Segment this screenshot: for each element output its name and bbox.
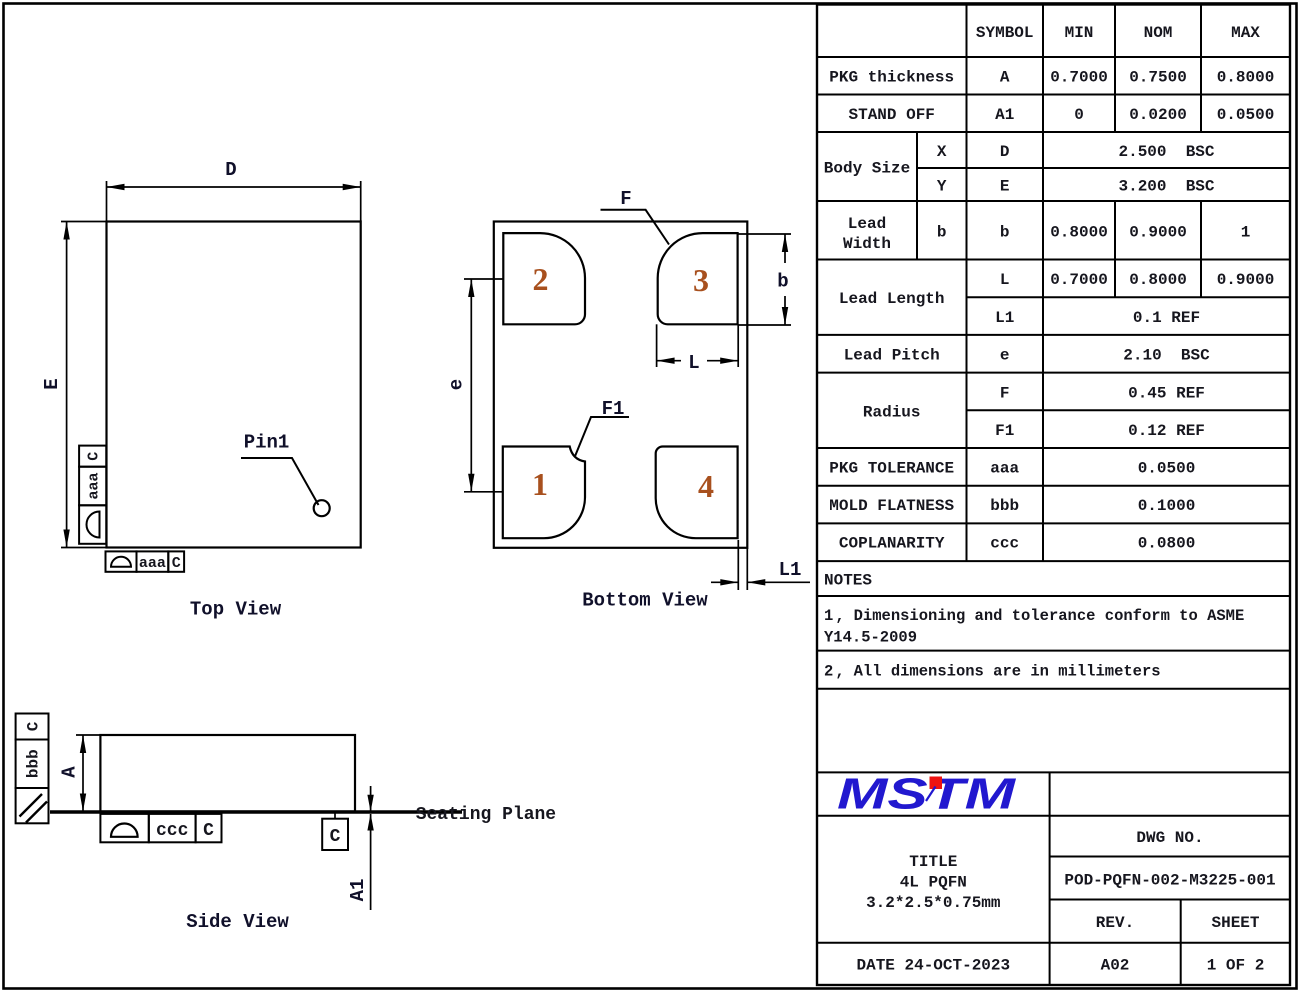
svg-text:MSTM: MSTM xyxy=(837,770,1017,819)
svg-text:0.1000: 0.1000 xyxy=(1138,497,1196,515)
svg-text:0.45 REF: 0.45 REF xyxy=(1128,385,1205,403)
svg-text:L1: L1 xyxy=(995,309,1014,327)
svg-text:C: C xyxy=(172,555,181,572)
svg-text:Width: Width xyxy=(843,235,891,253)
svg-text:Lead: Lead xyxy=(848,215,886,233)
svg-text:bbb: bbb xyxy=(990,497,1019,515)
svg-text:0.7000: 0.7000 xyxy=(1050,271,1108,289)
svg-text:A1: A1 xyxy=(347,879,369,902)
svg-text:Lead Pitch: Lead Pitch xyxy=(844,347,940,365)
svg-text:0.0500: 0.0500 xyxy=(1138,460,1196,478)
svg-text:Pin1: Pin1 xyxy=(244,432,290,454)
svg-text:F: F xyxy=(620,188,631,210)
svg-text:b: b xyxy=(937,224,947,242)
svg-text:STAND OFF: STAND OFF xyxy=(848,106,934,124)
svg-text:L: L xyxy=(1000,271,1010,289)
svg-text:F1: F1 xyxy=(602,398,625,420)
svg-text:1: 1 xyxy=(1241,224,1251,242)
svg-text:C: C xyxy=(330,827,341,847)
svg-text:C: C xyxy=(86,452,103,461)
svg-text:Side View: Side View xyxy=(186,911,289,933)
svg-text:POD-PQFN-002-M3225-001: POD-PQFN-002-M3225-001 xyxy=(1064,872,1275,890)
svg-text:0.0500: 0.0500 xyxy=(1217,106,1275,124)
svg-text:A: A xyxy=(1000,69,1010,87)
svg-text:0.9000: 0.9000 xyxy=(1217,271,1275,289)
svg-text:MOLD FLATNESS: MOLD FLATNESS xyxy=(829,497,954,515)
svg-text:Y14.5-2009: Y14.5-2009 xyxy=(824,629,917,647)
svg-text:ccc: ccc xyxy=(990,535,1019,553)
svg-text:Seating Plane: Seating Plane xyxy=(416,805,556,825)
svg-text:MAX: MAX xyxy=(1231,24,1260,42)
svg-text:DWG NO.: DWG NO. xyxy=(1136,829,1203,847)
svg-text:aaa: aaa xyxy=(139,555,166,572)
svg-text:L: L xyxy=(688,352,699,374)
svg-text:aaa: aaa xyxy=(990,460,1019,478)
svg-text:0.8000: 0.8000 xyxy=(1217,69,1275,87)
svg-text:0.7000: 0.7000 xyxy=(1050,69,1108,87)
svg-text:C: C xyxy=(203,821,214,841)
svg-text:F1: F1 xyxy=(995,422,1014,440)
svg-text:F: F xyxy=(1000,385,1010,403)
svg-text:NOM: NOM xyxy=(1144,24,1173,42)
svg-text:D: D xyxy=(1000,143,1010,161)
svg-text:NOTES: NOTES xyxy=(824,572,872,590)
svg-text:b: b xyxy=(777,271,788,293)
svg-text:PKG TOLERANCE: PKG TOLERANCE xyxy=(829,460,954,478)
svg-text:e: e xyxy=(1000,347,1010,365)
svg-text:D: D xyxy=(225,159,236,181)
svg-text:3.2*2.5*0.75mm: 3.2*2.5*0.75mm xyxy=(866,894,1001,912)
svg-text:Y: Y xyxy=(937,178,947,196)
svg-text:Radius: Radius xyxy=(863,404,921,422)
svg-text:0.8000: 0.8000 xyxy=(1129,271,1187,289)
svg-text:3: 3 xyxy=(693,262,709,298)
svg-text:SYMBOL: SYMBOL xyxy=(976,24,1034,42)
svg-text:bbb: bbb xyxy=(25,749,43,778)
svg-text:1: 1 xyxy=(532,466,548,502)
svg-text:0.9000: 0.9000 xyxy=(1129,224,1187,242)
svg-text:DATE 24-OCT-2023: DATE 24-OCT-2023 xyxy=(856,957,1010,975)
svg-text:0: 0 xyxy=(1074,106,1084,124)
svg-text:e: e xyxy=(446,379,468,390)
svg-text:A02: A02 xyxy=(1101,957,1130,975)
svg-text:1 OF 2: 1 OF 2 xyxy=(1207,957,1265,975)
svg-text:Bottom View: Bottom View xyxy=(582,590,708,612)
svg-text:TITLE: TITLE xyxy=(909,853,957,871)
svg-text:3.200 BSC: 3.200 BSC xyxy=(1118,178,1214,196)
svg-text:2: 2 xyxy=(533,261,549,297)
svg-text:4: 4 xyxy=(698,468,714,504)
svg-text:2.500 BSC: 2.500 BSC xyxy=(1118,143,1214,161)
svg-text:COPLANARITY: COPLANARITY xyxy=(839,535,945,553)
svg-text:A1: A1 xyxy=(995,106,1014,124)
svg-text:b: b xyxy=(1000,224,1010,242)
svg-text:0.7500: 0.7500 xyxy=(1129,69,1187,87)
svg-text:SHEET: SHEET xyxy=(1211,914,1259,932)
svg-text:Lead Length: Lead Length xyxy=(839,290,945,308)
svg-text:Top View: Top View xyxy=(190,599,282,621)
svg-text:Body Size: Body Size xyxy=(824,160,910,178)
svg-text:0.8000: 0.8000 xyxy=(1050,224,1108,242)
svg-text:E: E xyxy=(41,378,63,389)
svg-text:0.0800: 0.0800 xyxy=(1138,535,1196,553)
svg-text:MIN: MIN xyxy=(1065,24,1094,42)
svg-text:E: E xyxy=(1000,178,1010,196)
svg-text:REV.: REV. xyxy=(1096,914,1134,932)
svg-text:0.1 REF: 0.1 REF xyxy=(1133,309,1200,327)
svg-text:0.12 REF: 0.12 REF xyxy=(1128,422,1205,440)
svg-text:1,Dimensioning and tolerance c: 1,Dimensioning and tolerance conform to … xyxy=(824,607,1244,625)
svg-text:PKG thickness: PKG thickness xyxy=(829,69,954,87)
svg-text:X: X xyxy=(937,143,947,161)
svg-text:2.10 BSC: 2.10 BSC xyxy=(1123,347,1210,365)
svg-text:0.0200: 0.0200 xyxy=(1129,106,1187,124)
svg-text:C: C xyxy=(25,721,43,731)
svg-text:2,All dimensions are in millim: 2,All dimensions are in millimeters xyxy=(824,663,1161,681)
svg-text:ccc: ccc xyxy=(156,821,188,841)
svg-text:L1: L1 xyxy=(779,559,802,581)
svg-text:4L PQFN: 4L PQFN xyxy=(900,874,967,892)
svg-text:A: A xyxy=(59,766,81,778)
svg-text:aaa: aaa xyxy=(86,472,103,499)
